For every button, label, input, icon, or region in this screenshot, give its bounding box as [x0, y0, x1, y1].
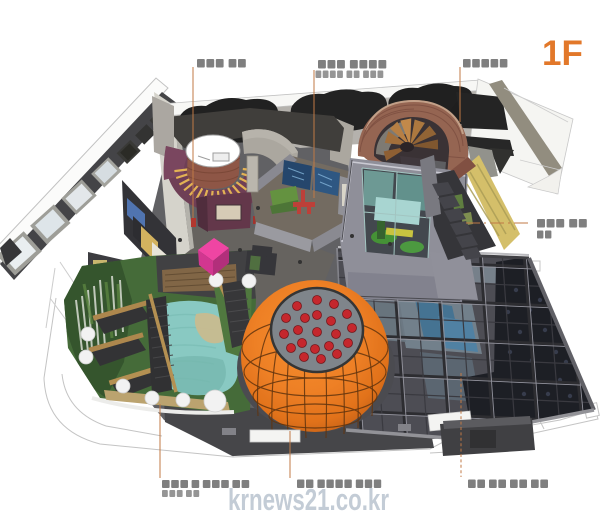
svg-text:1F: 1F	[542, 34, 583, 73]
svg-text:krnews21.co.kr: krnews21.co.kr	[228, 482, 389, 513]
